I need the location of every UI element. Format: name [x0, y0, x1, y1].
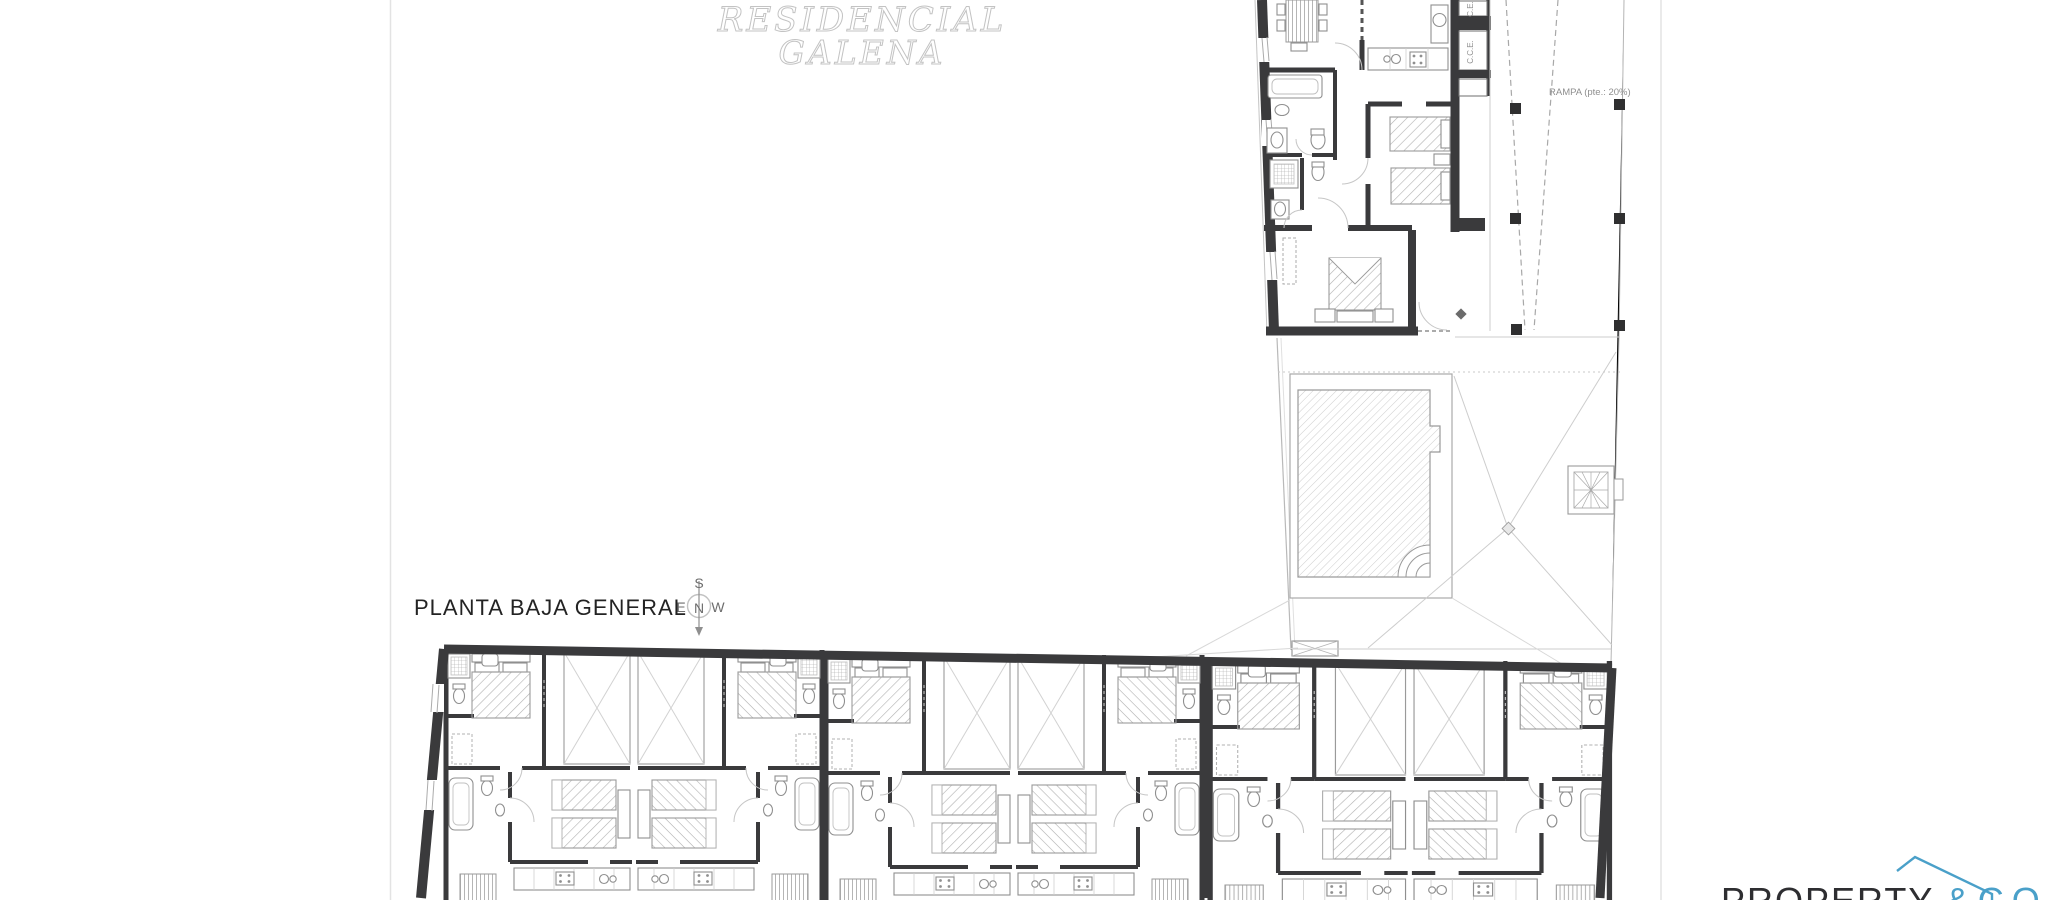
closet-label-cce: C.C.E. — [1466, 40, 1475, 64]
apartment-unit-pair — [446, 650, 822, 900]
watermark-line2: GALENA — [779, 33, 946, 72]
apartment-unit-pair — [1210, 661, 1609, 900]
ramp-columns — [1510, 99, 1625, 335]
brand-logo: PROPERTY &CO — [1721, 857, 2048, 900]
compass-arrow-icon — [695, 627, 703, 636]
pool-courtyard — [1090, 352, 1623, 664]
compass-rose: S E W N — [676, 575, 725, 636]
ramp-edge-line — [1534, 0, 1558, 330]
lower-apartment-block — [421, 649, 1612, 900]
compass-letter-north: N — [694, 600, 704, 616]
ramp-label: RAMPA (pte.: 20%) — [1549, 87, 1631, 98]
brand-suffix: &CO — [1946, 880, 2048, 900]
page-title: PLANTA BAJA GENERAL — [414, 595, 687, 620]
apartment-unit-pair — [826, 655, 1202, 900]
upper-apartment-plan: C.E. C.C.E. — [1258, 0, 1491, 331]
plan-canvas: RESIDENCIAL GALENA PLANTA BAJA GENERAL S… — [0, 0, 2048, 900]
compass-letter-west: W — [711, 599, 725, 615]
floor-plan-sheet: RESIDENCIAL GALENA PLANTA BAJA GENERAL S… — [0, 0, 2048, 900]
ramp-edge-line — [1506, 0, 1525, 330]
watermark-title: RESIDENCIAL GALENA — [717, 0, 1007, 72]
compass-letter-east: E — [676, 599, 685, 615]
brand-name: PROPERTY — [1721, 880, 1934, 900]
brand-wordmark: PROPERTY &CO — [1721, 880, 2048, 900]
compass-letter-south: S — [694, 575, 703, 591]
closet-label-ce: C.E. — [1466, 1, 1475, 17]
